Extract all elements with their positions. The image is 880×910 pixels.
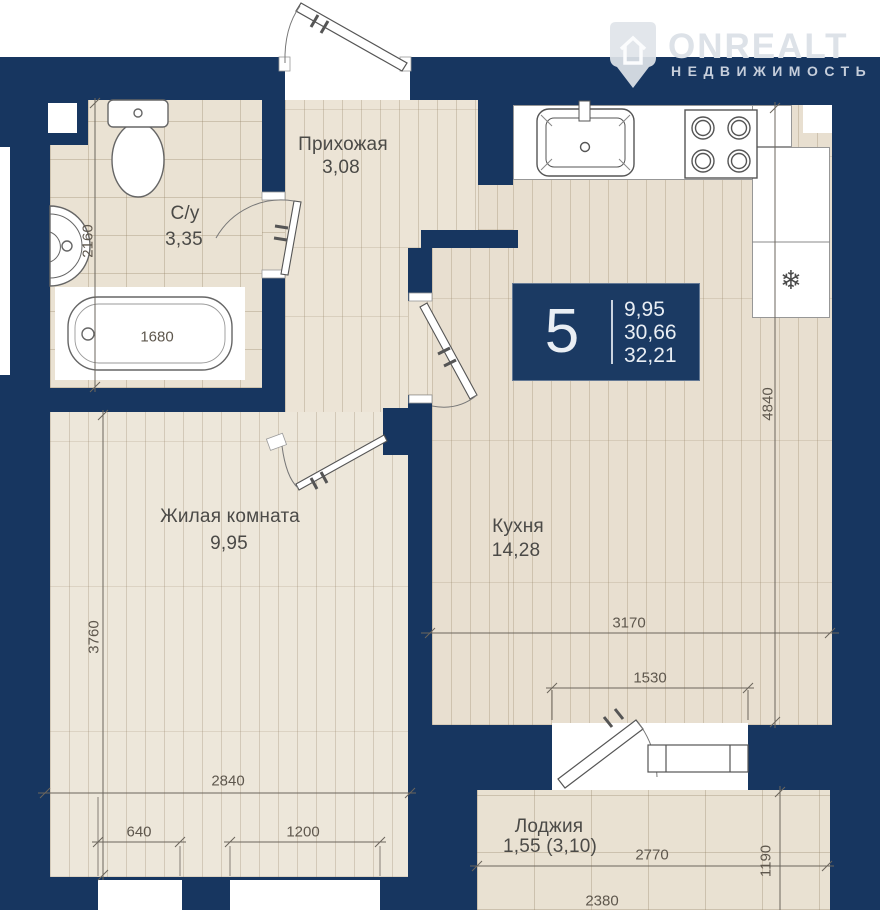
dim-balcony-unit: 1530: [633, 670, 666, 687]
dim-kitchen-h: 4840: [760, 387, 777, 420]
entrance-door: [279, 3, 411, 71]
dim-window-small: 640: [126, 824, 151, 841]
fridge-icon: ❄: [780, 266, 802, 296]
dim-window-large: 1200: [286, 824, 319, 841]
kitchen-label: Кухня: [492, 516, 544, 538]
loggia-label: Лоджия: [515, 816, 584, 838]
balcony-door: [558, 709, 657, 788]
living-room-door: [266, 433, 387, 490]
hallway-label: Прихожая: [298, 134, 388, 156]
kitchen-area: 14,28: [492, 540, 541, 562]
dimension-lines: [38, 98, 839, 910]
apartment-number: 5: [513, 301, 611, 363]
kitchen-door: [409, 293, 477, 407]
dim-loggia-w: 2770: [635, 847, 668, 864]
stove-icon: [685, 110, 757, 178]
logo-brand: ONREALT: [668, 27, 849, 67]
living-room-area: 9,95: [210, 533, 248, 555]
dim-bathroom-h: 2160: [80, 224, 97, 257]
dim-living-w: 2840: [211, 773, 244, 790]
logo-tagline: НЕДВИЖИМОСТЬ: [671, 63, 872, 79]
dim-loggia-depth: 1190: [758, 845, 775, 877]
apartment-info-box: 5 9,95 30,66 32,21: [512, 283, 700, 381]
bathroom-area: 3,35: [165, 229, 203, 251]
apartment-areas: 9,95 30,66 32,21: [613, 298, 677, 367]
area-living: 9,95: [624, 298, 677, 321]
living-room-label: Жилая комната: [160, 506, 300, 528]
fixtures-layer: [0, 0, 880, 910]
dim-loggia-bottom: 2380: [585, 893, 618, 910]
kitchen-sink-icon: [537, 101, 634, 176]
dim-bathtub: 1680: [140, 329, 173, 346]
floor-plan-page: { "logo": { "brand": "ONREALT", "tagline…: [0, 0, 880, 910]
bathroom-label: С/у: [170, 203, 199, 225]
toilet-icon: [108, 100, 168, 197]
area-usable: 30,66: [624, 321, 677, 344]
dim-kitchen-w: 3170: [612, 615, 645, 632]
bathroom-door: [216, 192, 301, 278]
dim-living-h: 3760: [86, 620, 103, 653]
loggia-area: 1,55 (3,10): [503, 836, 597, 858]
area-total: 32,21: [624, 344, 677, 367]
balcony-window: [648, 745, 748, 772]
hallway-area: 3,08: [322, 157, 360, 179]
logo-pin-icon: [604, 18, 662, 92]
